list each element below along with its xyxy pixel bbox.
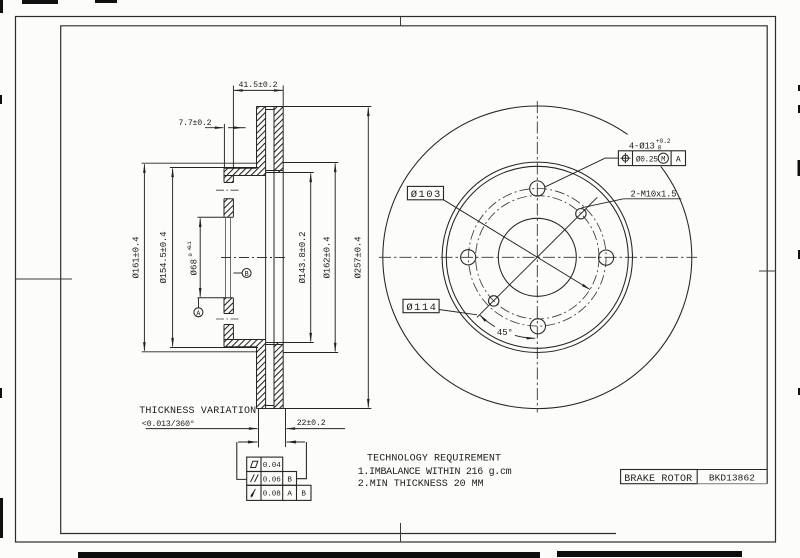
svg-text:B: B	[301, 491, 306, 499]
svg-text:0.04: 0.04	[263, 462, 281, 470]
svg-text:Ø68: Ø68	[190, 259, 200, 276]
svg-text:TECHNOLOGY REQUIREMENT: TECHNOLOGY REQUIREMENT	[367, 453, 501, 464]
svg-text:BKD13862: BKD13862	[709, 472, 755, 483]
svg-text:7.7±0.2: 7.7±0.2	[179, 119, 212, 128]
svg-text:Ø162±0.4: Ø162±0.4	[323, 237, 333, 279]
svg-text:+0.1: +0.1	[186, 241, 193, 251]
svg-text:Ø114: Ø114	[406, 302, 436, 314]
svg-text:B: B	[287, 476, 292, 484]
svg-text:A: A	[676, 155, 681, 164]
svg-text:A: A	[196, 310, 201, 318]
svg-text:4-Ø13: 4-Ø13	[629, 141, 655, 151]
svg-text:THICKNESS VARIATION: THICKNESS VARIATION	[139, 406, 256, 417]
svg-text:41.5±0.2: 41.5±0.2	[239, 81, 278, 90]
svg-text:Ø257±0.4: Ø257±0.4	[354, 237, 364, 279]
svg-text:Ø161±0.4: Ø161±0.4	[132, 237, 142, 279]
svg-text:22±0.2: 22±0.2	[297, 419, 326, 428]
svg-text:0.08: 0.08	[263, 491, 281, 499]
svg-text:M: M	[661, 156, 665, 164]
svg-text:Ø143.8±0.2: Ø143.8±0.2	[298, 232, 308, 284]
svg-text:Ø154.5±0.4: Ø154.5±0.4	[159, 232, 169, 284]
svg-text:BRAKE ROTOR: BRAKE ROTOR	[624, 474, 692, 485]
svg-text:Ø103: Ø103	[411, 189, 441, 201]
svg-text:0.06: 0.06	[263, 476, 281, 484]
svg-text:A: A	[287, 491, 292, 499]
svg-text:0: 0	[187, 253, 194, 257]
svg-text:B: B	[244, 271, 248, 279]
svg-text:45°: 45°	[497, 328, 513, 338]
svg-text:<0.013/360°: <0.013/360°	[142, 419, 195, 429]
svg-text:2-M10x1.5: 2-M10x1.5	[631, 189, 677, 199]
svg-text:2.MIN THICKNESS 20 MM: 2.MIN THICKNESS 20 MM	[358, 479, 484, 490]
svg-text:1.IMBALANCE WITHIN 216 g.cm: 1.IMBALANCE WITHIN 216 g.cm	[358, 467, 512, 478]
svg-text:Ø0.25: Ø0.25	[636, 155, 658, 164]
